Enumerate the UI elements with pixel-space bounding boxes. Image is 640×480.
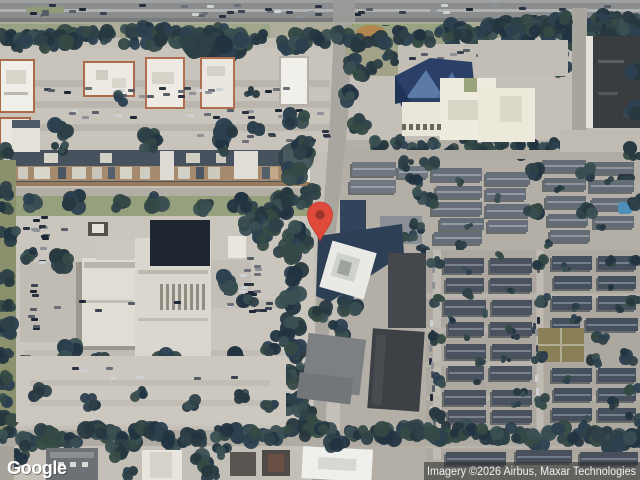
svg-text:Google: Google (7, 458, 67, 478)
svg-text:Imagery ©2026 Airbus, Maxar Te: Imagery ©2026 Airbus, Maxar Technologies (427, 466, 636, 478)
